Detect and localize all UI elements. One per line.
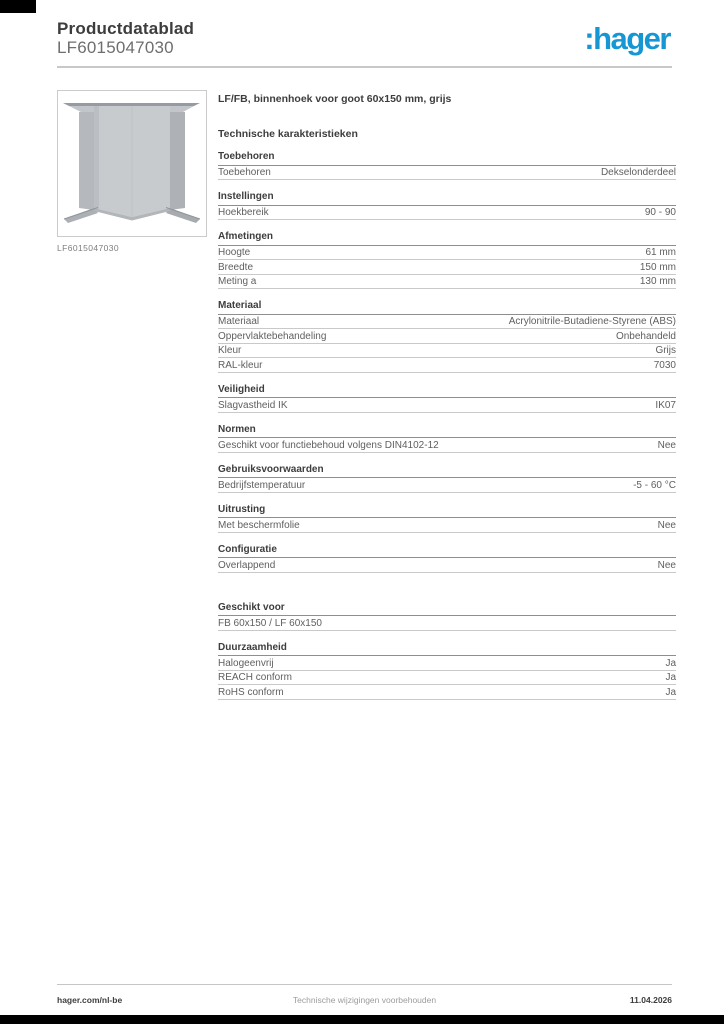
- spec-section-veiligheid: Veiligheid Slagvastheid IK IK07: [218, 384, 676, 413]
- spec-value: -5 - 60 °C: [633, 480, 676, 491]
- spec-section-normen: Normen Geschikt voor functiebehoud volge…: [218, 424, 676, 453]
- spec-label: Met beschermfolie: [218, 520, 310, 531]
- spec-label: RAL-kleur: [218, 360, 272, 371]
- spec-label: Breedte: [218, 262, 263, 273]
- spec-column: LF/FB, binnenhoek voor goot 60x150 mm, g…: [218, 93, 676, 700]
- spec-value: IK07: [655, 400, 676, 411]
- spec-label: Toebehoren: [218, 167, 281, 178]
- datasheet-page: Productdatablad LF6015047030 :hager LF60…: [0, 0, 724, 1024]
- tech-characteristics-heading: Technische karakteristieken: [218, 128, 676, 140]
- table-row: Hoekbereik 90 - 90: [218, 206, 676, 221]
- product-id: LF6015047030: [57, 38, 174, 58]
- table-row: RAL-kleur 7030: [218, 358, 676, 373]
- spec-label: Hoogte: [218, 247, 260, 258]
- spec-value: Grijs: [655, 345, 676, 356]
- spec-value: Nee: [658, 520, 676, 531]
- spec-label: Bedrijfstemperatuur: [218, 480, 315, 491]
- table-row: Materiaal Acrylonitrile-Butadiene-Styren…: [218, 315, 676, 330]
- spec-section-title: Geschikt voor: [218, 602, 676, 617]
- spec-section-title: Materiaal: [218, 300, 676, 315]
- spec-label: Overlappend: [218, 560, 285, 571]
- spec-section-configuratie: Configuratie Overlappend Nee: [218, 544, 676, 573]
- spec-label: Halogeenvrij: [218, 658, 284, 669]
- spec-section-title: Gebruiksvoorwaarden: [218, 464, 676, 479]
- spec-section-duurzaamheid: Duurzaamheid Halogeenvrij Ja REACH confo…: [218, 642, 676, 700]
- spec-section-instellingen: Instellingen Hoekbereik 90 - 90: [218, 191, 676, 220]
- spec-label: Meting a: [218, 276, 266, 287]
- table-row: Toebehoren Dekselonderdeel: [218, 166, 676, 181]
- table-row: Overlappend Nee: [218, 558, 676, 573]
- hager-logo: :hager: [584, 21, 670, 57]
- spec-value: 90 - 90: [645, 207, 676, 218]
- product-image: [58, 91, 206, 236]
- spec-label: Hoekbereik: [218, 207, 279, 218]
- spec-value: Dekselonderdeel: [601, 167, 676, 178]
- spec-value: Acrylonitrile-Butadiene-Styrene (ABS): [509, 316, 676, 327]
- spec-value: Ja: [665, 687, 676, 698]
- spec-section-uitrusting: Uitrusting Met beschermfolie Nee: [218, 504, 676, 533]
- spec-section-geschikt-voor: Geschikt voor FB 60x150 / LF 60x150: [218, 602, 676, 631]
- spec-section-title: Duurzaamheid: [218, 642, 676, 657]
- spec-section-title: Normen: [218, 424, 676, 439]
- table-row: Breedte 150 mm: [218, 260, 676, 275]
- table-row: REACH conform Ja: [218, 671, 676, 686]
- table-row: Bedrijfstemperatuur -5 - 60 °C: [218, 478, 676, 493]
- spec-label: Oppervlaktebehandeling: [218, 331, 336, 342]
- product-image-frame: [57, 90, 207, 237]
- spec-value: Nee: [658, 440, 676, 451]
- table-row: Meting a 130 mm: [218, 275, 676, 290]
- page-edge-artifact-top: [0, 0, 36, 13]
- table-row: FB 60x150 / LF 60x150: [218, 616, 676, 631]
- footer-disclaimer: Technische wijzigingen voorbehouden: [293, 995, 436, 1005]
- spec-label: Geschikt voor functiebehoud volgens DIN4…: [218, 440, 449, 451]
- footer-website-link[interactable]: hager.com/nl-be: [57, 995, 122, 1005]
- spec-section-gebruiksvoorwaarden: Gebruiksvoorwaarden Bedrijfstemperatuur …: [218, 464, 676, 493]
- product-title: LF/FB, binnenhoek voor goot 60x150 mm, g…: [218, 93, 676, 105]
- spec-label: Materiaal: [218, 316, 269, 327]
- table-row: Slagvastheid IK IK07: [218, 398, 676, 413]
- spec-section-title: Afmetingen: [218, 231, 676, 246]
- spec-label: Slagvastheid IK: [218, 400, 298, 411]
- spec-value: 7030: [654, 360, 676, 371]
- table-row: RoHS conform Ja: [218, 685, 676, 700]
- table-row: Halogeenvrij Ja: [218, 656, 676, 671]
- table-row: Hoogte 61 mm: [218, 246, 676, 261]
- spec-label: REACH conform: [218, 672, 302, 683]
- spec-section-title: Toebehoren: [218, 151, 676, 166]
- footer: hager.com/nl-be Technische wijzigingen v…: [57, 995, 672, 1005]
- spec-value: 130 mm: [640, 276, 676, 287]
- spec-value: Ja: [665, 658, 676, 669]
- table-row: Kleur Grijs: [218, 344, 676, 359]
- product-image-caption: LF6015047030: [57, 243, 119, 253]
- spec-value: Nee: [658, 560, 676, 571]
- header-divider: [57, 66, 672, 68]
- spec-value: 61 mm: [645, 247, 676, 258]
- spec-label: FB 60x150 / LF 60x150: [218, 618, 332, 629]
- spec-label: RoHS conform: [218, 687, 294, 698]
- spec-value: Ja: [665, 672, 676, 683]
- spec-value: Onbehandeld: [616, 331, 676, 342]
- table-row: Met beschermfolie Nee: [218, 518, 676, 533]
- spec-section-materiaal: Materiaal Materiaal Acrylonitrile-Butadi…: [218, 300, 676, 373]
- spec-value: 150 mm: [640, 262, 676, 273]
- footer-divider: [57, 984, 672, 985]
- footer-date: 11.04.2026: [630, 995, 672, 1005]
- spec-section-title: Instellingen: [218, 191, 676, 206]
- spec-section-title: Veiligheid: [218, 384, 676, 399]
- spec-section-title: Uitrusting: [218, 504, 676, 519]
- table-row: Oppervlaktebehandeling Onbehandeld: [218, 329, 676, 344]
- spec-label: Kleur: [218, 345, 251, 356]
- spec-section-toebehoren: Toebehoren Toebehoren Dekselonderdeel: [218, 151, 676, 180]
- page-edge-artifact-bottom: [0, 1015, 724, 1024]
- page-title: Productdatablad: [57, 19, 194, 39]
- spec-section-title: Configuratie: [218, 544, 676, 559]
- table-row: Geschikt voor functiebehoud volgens DIN4…: [218, 438, 676, 453]
- spec-section-afmetingen: Afmetingen Hoogte 61 mm Breedte 150 mm M…: [218, 231, 676, 289]
